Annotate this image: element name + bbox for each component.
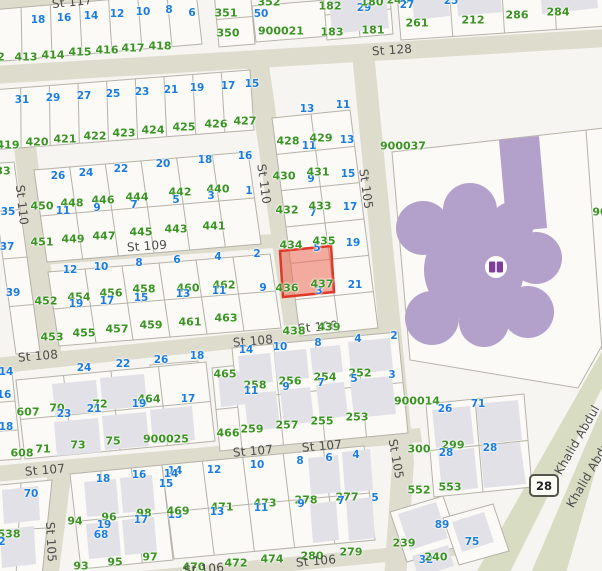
building-icon-backdrop	[485, 256, 507, 278]
parcel	[54, 418, 101, 456]
parcel	[0, 0, 202, 62]
map-canvas[interactable]: St 1171816141210862413414415416417418352…	[0, 0, 602, 571]
parcel	[346, 497, 375, 541]
parcel	[102, 412, 149, 450]
parcel	[0, 70, 254, 150]
parcel	[218, 371, 247, 407]
parcel	[120, 475, 155, 513]
parcel	[348, 338, 393, 374]
parcel	[342, 449, 373, 493]
parcel	[150, 406, 195, 444]
parcel	[86, 521, 121, 559]
route-shield-number: 28	[536, 479, 552, 493]
parcel	[310, 345, 343, 375]
parcel	[480, 442, 526, 488]
parcel	[214, 0, 255, 47]
parcel	[0, 526, 36, 568]
parcel	[274, 349, 309, 381]
parcel	[2, 486, 40, 524]
parcel	[310, 501, 339, 543]
parcel	[476, 400, 522, 444]
map-geometry	[0, 0, 602, 571]
parcel	[308, 455, 341, 495]
parcel	[100, 374, 147, 410]
parcel	[52, 380, 99, 416]
parcel	[84, 479, 119, 517]
parcel	[252, 0, 330, 42]
parcel	[350, 376, 396, 418]
parcel	[432, 406, 474, 448]
selected-parcel-436[interactable]	[280, 246, 334, 297]
parcel	[316, 382, 348, 419]
parcel	[280, 387, 314, 425]
parcel	[244, 391, 280, 431]
parcel	[329, 0, 389, 34]
parcel	[438, 448, 478, 492]
route-shield: 28	[529, 474, 559, 497]
parcel	[122, 517, 157, 555]
